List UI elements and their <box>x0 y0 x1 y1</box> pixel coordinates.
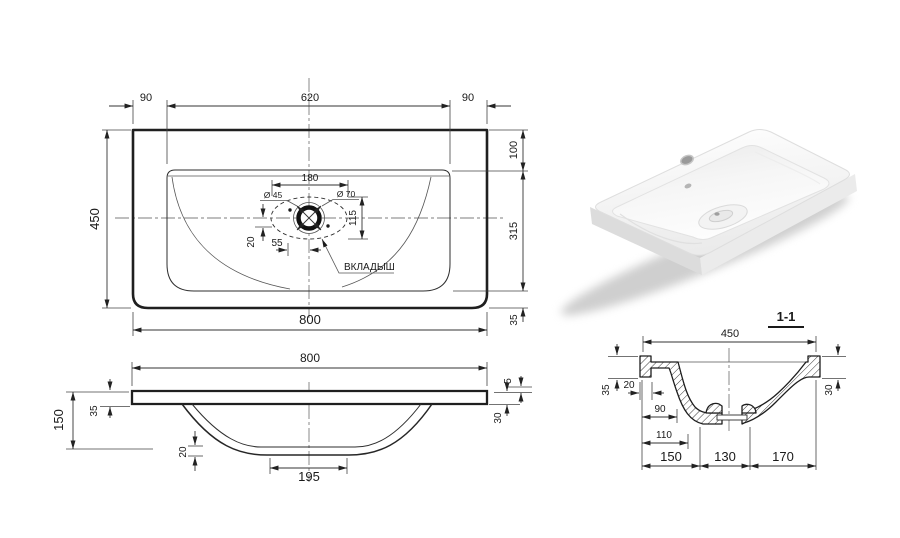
dim-section-30: 30 <box>822 344 846 396</box>
dim-drain-span: 180 <box>302 173 319 184</box>
dim-width-800: 800 <box>133 312 487 336</box>
dim-front-35: 35 <box>89 379 130 418</box>
dim-drain-offset-x: 55 <box>271 238 283 249</box>
dim-front-195: 195 <box>270 458 347 484</box>
dim-right-chain: 100 315 35 <box>452 130 528 326</box>
dim-section-110: 110 <box>642 430 688 449</box>
drain-insert-plate <box>717 415 747 420</box>
dim-section-rim: 35 <box>601 384 612 396</box>
insert-label: ВКЛАДЫШ <box>344 262 395 273</box>
section-title-text: 1-1 <box>777 309 796 324</box>
dim-front-bottom-thickness: 20 <box>178 446 189 458</box>
dim-depth: 450 <box>87 208 102 230</box>
drain-dot-left <box>288 208 291 211</box>
front-view: 800 150 35 20 195 <box>51 351 532 484</box>
dim-section-20: 20 <box>623 380 664 400</box>
dim-section-wall: 110 <box>656 430 672 441</box>
dim-section-edge: 30 <box>824 384 835 396</box>
dim-section-seg-left: 150 <box>660 449 682 464</box>
dim-front-800: 800 <box>132 351 487 386</box>
dim-bowl-width: 620 <box>301 92 319 104</box>
dim-front-flat-bottom: 195 <box>298 469 320 484</box>
insert-callout: ВКЛАДЫШ <box>322 239 395 273</box>
dim-back-offset: 100 <box>508 141 520 159</box>
dim-depth-450: 450 <box>87 130 131 308</box>
dim-drain-offset-y: 20 <box>246 236 257 248</box>
dim-front-lip: 5 <box>503 378 514 384</box>
dim-front-height: 150 <box>51 409 66 431</box>
section-title: 1-1 <box>768 309 804 327</box>
dim-front-5: 5 <box>494 376 532 403</box>
dim-section-rim-width: 20 <box>623 380 635 391</box>
drain-dot-right <box>326 224 329 227</box>
dim-front-rim: 35 <box>89 405 100 417</box>
label-dia-45: Ø 45 <box>260 190 297 206</box>
dim-drain-dia-small: Ø 45 <box>264 190 283 200</box>
dim-section-seg-mid: 130 <box>714 449 736 464</box>
dim-front-width: 800 <box>300 351 320 365</box>
dim-drain-55: 55 <box>271 238 321 256</box>
dim-top-chain: 90 620 90 <box>109 92 511 164</box>
dim-section-width: 450 <box>721 328 739 340</box>
countertop-slab <box>132 391 487 404</box>
dim-section-ledge: 90 <box>654 404 666 415</box>
top-view: 90 620 90 450 100 315 35 <box>87 78 528 336</box>
dim-bowl-depth: 315 <box>508 222 520 240</box>
product-photo <box>555 130 857 329</box>
dim-drain-20: 20 <box>246 204 272 248</box>
leader-arrow <box>322 239 328 248</box>
dim-section-seg-right: 170 <box>772 449 794 464</box>
dim-drain-dia-big: Ø 70 <box>337 189 356 199</box>
drawing-sheet: 90 620 90 450 100 315 35 <box>0 0 900 538</box>
dim-front-20: 20 <box>178 431 203 471</box>
dim-front-offset: 35 <box>509 314 520 326</box>
label-dia-70: Ø 70 <box>322 189 359 206</box>
section-wall-right <box>742 356 820 424</box>
dim-section-450: 450 <box>643 328 816 352</box>
drain-boss-right <box>742 404 756 413</box>
dim-width: 800 <box>299 312 321 327</box>
dim-front-edge: 30 <box>493 412 504 424</box>
section-view: 1-1 450 35 20 <box>601 309 846 470</box>
dim-drain-height: 115 <box>348 210 359 226</box>
dim-left-offset: 90 <box>140 92 152 104</box>
washbasin-drawing: 90 620 90 450 100 315 35 <box>0 0 900 538</box>
photo-drain-dot <box>714 212 719 216</box>
dim-right-offset: 90 <box>462 92 474 104</box>
drain-boss-left <box>706 403 722 413</box>
bowl-inner-profile <box>192 404 421 447</box>
